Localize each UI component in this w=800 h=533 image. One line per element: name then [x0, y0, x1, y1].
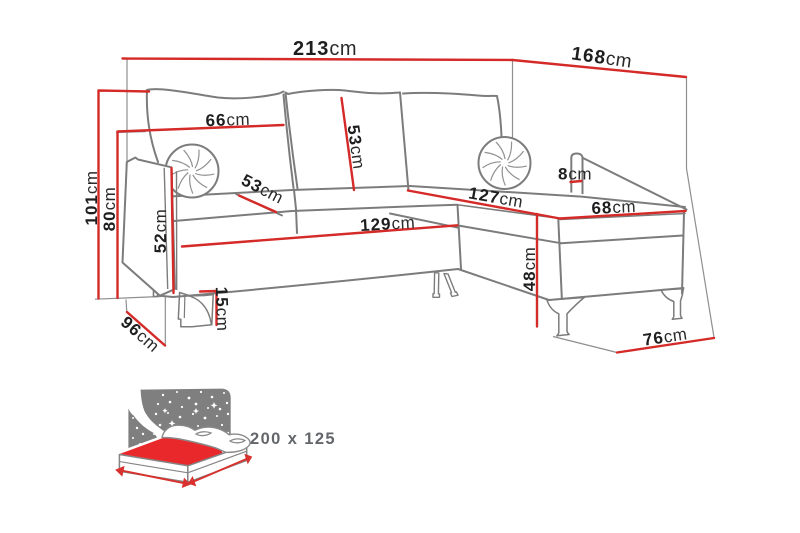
svg-text:200 x 125: 200 x 125 — [250, 430, 336, 448]
svg-text:68cm: 68cm — [591, 197, 636, 218]
svg-text:15cm: 15cm — [212, 286, 233, 331]
svg-text:129cm: 129cm — [360, 213, 416, 235]
svg-text:66cm: 66cm — [205, 110, 250, 131]
svg-text:48cm: 48cm — [520, 247, 539, 292]
svg-text:101cm: 101cm — [82, 170, 101, 225]
svg-text:8cm: 8cm — [558, 165, 592, 184]
svg-text:52cm: 52cm — [151, 209, 170, 254]
svg-text:80cm: 80cm — [100, 187, 119, 232]
svg-text:213cm: 213cm — [293, 38, 357, 60]
